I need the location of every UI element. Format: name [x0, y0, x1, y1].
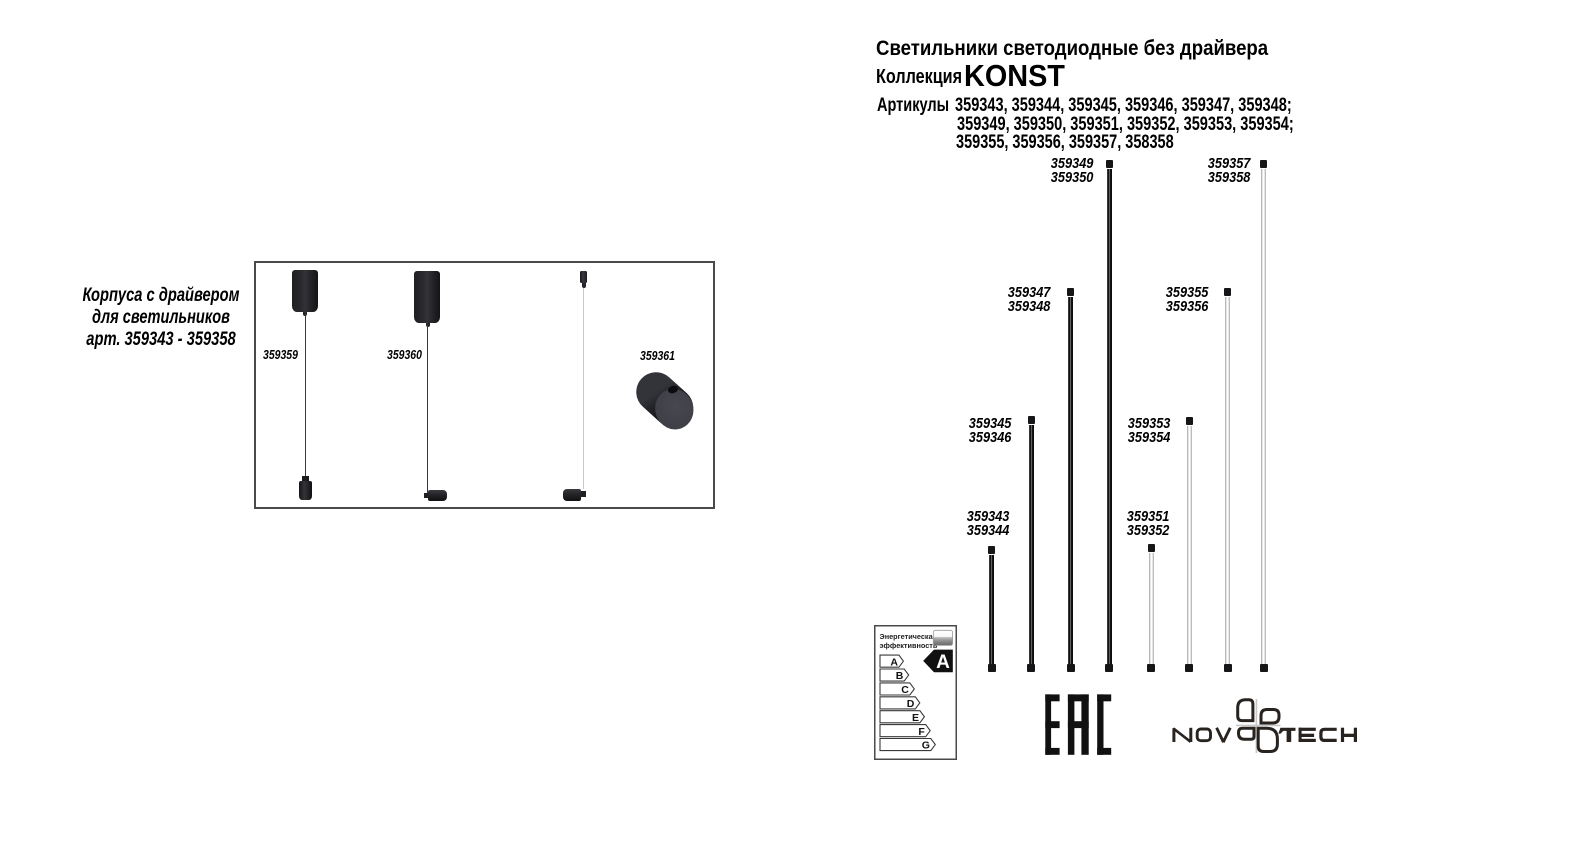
svg-text:C: C	[901, 684, 909, 696]
svg-text:A: A	[936, 651, 950, 672]
svg-text:F: F	[918, 725, 925, 737]
svg-text:B: B	[896, 670, 904, 682]
svg-text:G: G	[922, 739, 930, 751]
svg-text:эффективность: эффективность	[880, 641, 938, 650]
svg-text:Энергетическая: Энергетическая	[880, 632, 937, 641]
svg-text:D: D	[907, 698, 915, 710]
svg-text:E: E	[912, 711, 919, 723]
svg-text:A: A	[890, 656, 898, 668]
